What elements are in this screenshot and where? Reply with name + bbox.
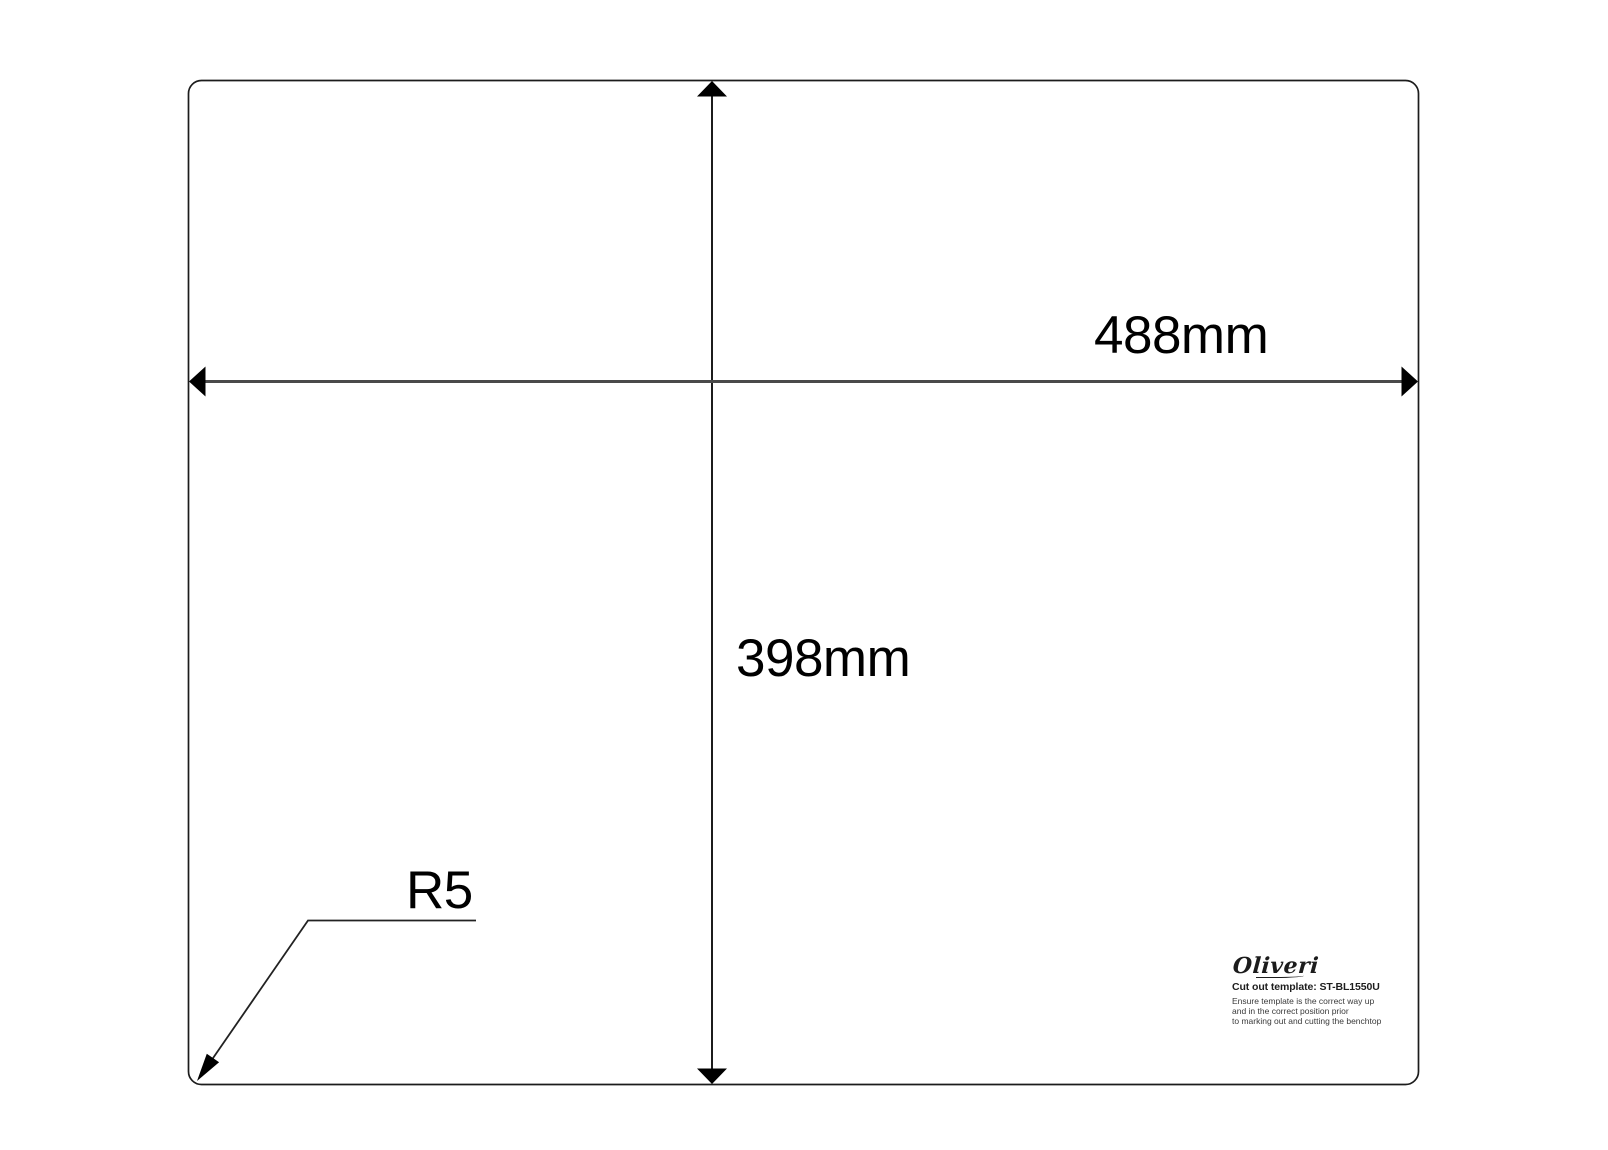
- arrow-right-icon: [1402, 367, 1419, 397]
- width-dimension-label: 488mm: [1094, 306, 1268, 367]
- instruction-line: and in the correct position prior: [1232, 1006, 1407, 1016]
- oliveri-logo: Oliveri: [1232, 953, 1409, 979]
- template-instructions: Ensure template is the correct way up an…: [1232, 996, 1407, 1026]
- cutout-template-page: 488mm 398mm R5 Oliveri Cut out template:…: [0, 0, 1608, 1150]
- radius-leader-line: [211, 921, 476, 1062]
- arrow-up-icon: [697, 81, 727, 97]
- branding-block: Oliveri Cut out template: ST-BL1550U Ens…: [1232, 953, 1407, 1026]
- height-dimension-label: 398mm: [736, 629, 910, 690]
- instruction-line: to marking out and cutting the benchtop: [1232, 1016, 1407, 1026]
- arrow-down-left-icon: [197, 1054, 219, 1081]
- arrow-left-icon: [189, 367, 206, 397]
- arrow-down-icon: [697, 1069, 727, 1085]
- template-title: Cut out template: ST-BL1550U: [1232, 980, 1407, 994]
- cutout-outline: [189, 81, 1419, 1085]
- instruction-line: Ensure template is the correct way up: [1232, 996, 1407, 1006]
- corner-radius-label: R5: [406, 861, 473, 922]
